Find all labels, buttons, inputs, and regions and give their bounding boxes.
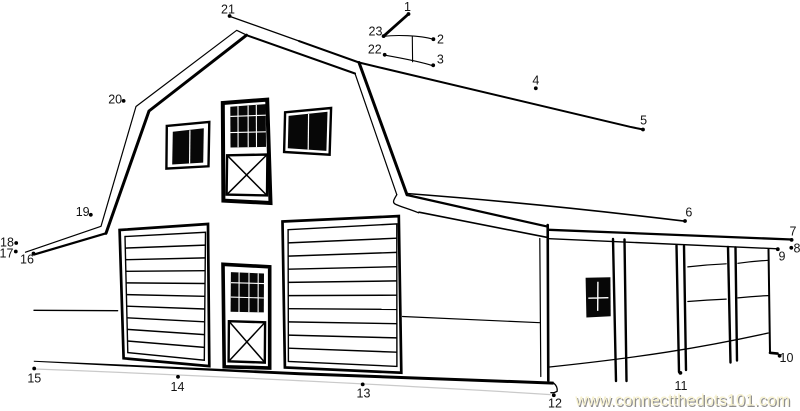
svg-text:5: 5 xyxy=(640,114,647,128)
svg-text:14: 14 xyxy=(171,380,185,394)
svg-text:3: 3 xyxy=(437,53,444,67)
svg-text:www.connectthedots101.com: www.connectthedots101.com xyxy=(574,392,790,410)
svg-text:10: 10 xyxy=(780,351,794,365)
svg-text:18: 18 xyxy=(0,236,14,250)
svg-text:22: 22 xyxy=(368,43,382,57)
svg-text:4: 4 xyxy=(532,74,539,88)
svg-text:15: 15 xyxy=(27,371,41,385)
svg-text:13: 13 xyxy=(357,387,371,401)
svg-text:19: 19 xyxy=(76,205,90,219)
svg-text:16: 16 xyxy=(20,253,34,267)
svg-text:20: 20 xyxy=(108,92,122,106)
svg-text:1: 1 xyxy=(404,0,411,14)
svg-text:23: 23 xyxy=(369,24,383,38)
svg-text:6: 6 xyxy=(685,206,692,220)
svg-text:9: 9 xyxy=(779,249,786,263)
svg-text:7: 7 xyxy=(790,225,797,239)
svg-text:2: 2 xyxy=(437,33,444,47)
svg-text:12: 12 xyxy=(548,397,562,411)
svg-text:8: 8 xyxy=(794,241,800,255)
svg-text:21: 21 xyxy=(221,3,235,17)
